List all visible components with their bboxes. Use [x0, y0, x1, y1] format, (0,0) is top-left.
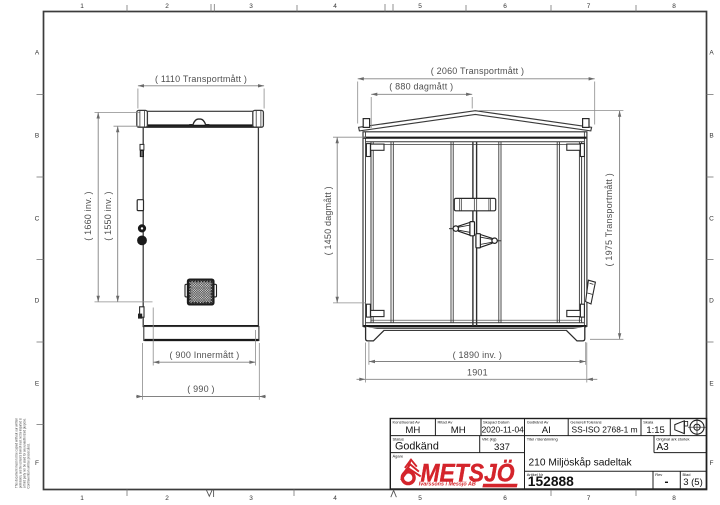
svg-text:Konstruerad Av: Konstruerad Av [393, 419, 420, 424]
svg-text:210 Miljöskåp sadeltak: 210 Miljöskåp sadeltak [529, 456, 633, 468]
svg-text:5: 5 [418, 495, 422, 502]
svg-text:Godkänd Av: Godkänd Av [527, 419, 549, 424]
svg-text:Ivarssons i Messjö AB: Ivarssons i Messjö AB [419, 482, 476, 488]
svg-text:2: 2 [165, 495, 169, 502]
svg-text:3: 3 [249, 3, 253, 10]
svg-text:8: 8 [672, 3, 676, 10]
svg-text:7: 7 [587, 495, 591, 502]
svg-text:Vikt (kg): Vikt (kg) [482, 436, 497, 441]
svg-text:( 1110 Transportmått ): ( 1110 Transportmått ) [155, 74, 247, 84]
svg-text:3 (5): 3 (5) [683, 477, 703, 488]
svg-text:( 1975 Transportmått ): ( 1975 Transportmått ) [604, 173, 614, 266]
svg-text:152888: 152888 [528, 474, 574, 489]
svg-text:4: 4 [333, 3, 337, 10]
svg-text:Skala: Skala [643, 419, 654, 424]
svg-text:Rev: Rev [655, 472, 662, 477]
svg-text:Contravention will be prosecut: Contravention will be prosecuted. [26, 443, 30, 488]
svg-text:B: B [35, 133, 39, 140]
svg-text:C: C [35, 216, 40, 223]
svg-text:7: 7 [587, 3, 591, 10]
svg-text:F: F [710, 460, 714, 467]
svg-text:( 1550 inv. ): ( 1550 inv. ) [103, 191, 113, 240]
svg-text:( 990 ): ( 990 ) [187, 384, 214, 394]
svg-text:B: B [709, 133, 713, 140]
svg-text:6: 6 [503, 495, 507, 502]
svg-text:5: 5 [418, 3, 422, 10]
svg-text:MH: MH [451, 425, 466, 436]
svg-text:SS-ISO 2768-1 m: SS-ISO 2768-1 m [572, 425, 638, 435]
svg-text:Titel / Benämning: Titel / Benämning [527, 436, 558, 441]
svg-text:( 1890 inv. ): ( 1890 inv. ) [453, 350, 502, 360]
svg-text:1901: 1901 [467, 368, 488, 378]
svg-text:8: 8 [672, 495, 676, 502]
svg-text:( 900 Innermått ): ( 900 Innermått ) [170, 350, 240, 360]
svg-text:A3: A3 [657, 442, 670, 453]
svg-text:2: 2 [165, 3, 169, 10]
svg-text:A: A [709, 50, 714, 57]
svg-text:A: A [35, 50, 40, 57]
svg-text:2020-11-04: 2020-11-04 [482, 425, 525, 435]
svg-text:( 1450 dagmått ): ( 1450 dagmått ) [323, 186, 333, 255]
svg-text:( 1660 inv. ): ( 1660 inv. ) [83, 191, 93, 240]
svg-text:AI: AI [542, 425, 551, 436]
svg-text:-: - [665, 475, 669, 489]
svg-text:Skapad Datum: Skapad Datum [483, 419, 510, 424]
svg-text:Ritad Av: Ritad Av [438, 419, 453, 424]
svg-text:1: 1 [80, 495, 84, 502]
svg-text:F: F [35, 460, 39, 467]
svg-text:Generell Tolerans: Generell Tolerans [570, 419, 601, 424]
svg-text:Ägare: Ägare [393, 453, 404, 458]
svg-text:337: 337 [494, 442, 510, 453]
svg-text:( 2060 Transportmått ): ( 2060 Transportmått ) [431, 66, 524, 76]
svg-text:MH: MH [405, 425, 420, 436]
svg-text:C: C [709, 216, 714, 223]
svg-text:3: 3 [249, 495, 253, 502]
svg-text:D: D [35, 298, 40, 305]
svg-text:1:15: 1:15 [646, 425, 665, 436]
svg-text:( 880 dagmått ): ( 880 dagmått ) [389, 82, 453, 92]
svg-text:E: E [35, 381, 40, 388]
svg-text:Godkänd: Godkänd [395, 441, 439, 453]
svg-text:Original ark storlek: Original ark storlek [656, 436, 689, 441]
svg-text:6: 6 [503, 3, 507, 10]
svg-text:4: 4 [333, 495, 337, 502]
svg-text:E: E [709, 381, 714, 388]
svg-text:1: 1 [80, 3, 84, 10]
svg-text:D: D [709, 298, 714, 305]
